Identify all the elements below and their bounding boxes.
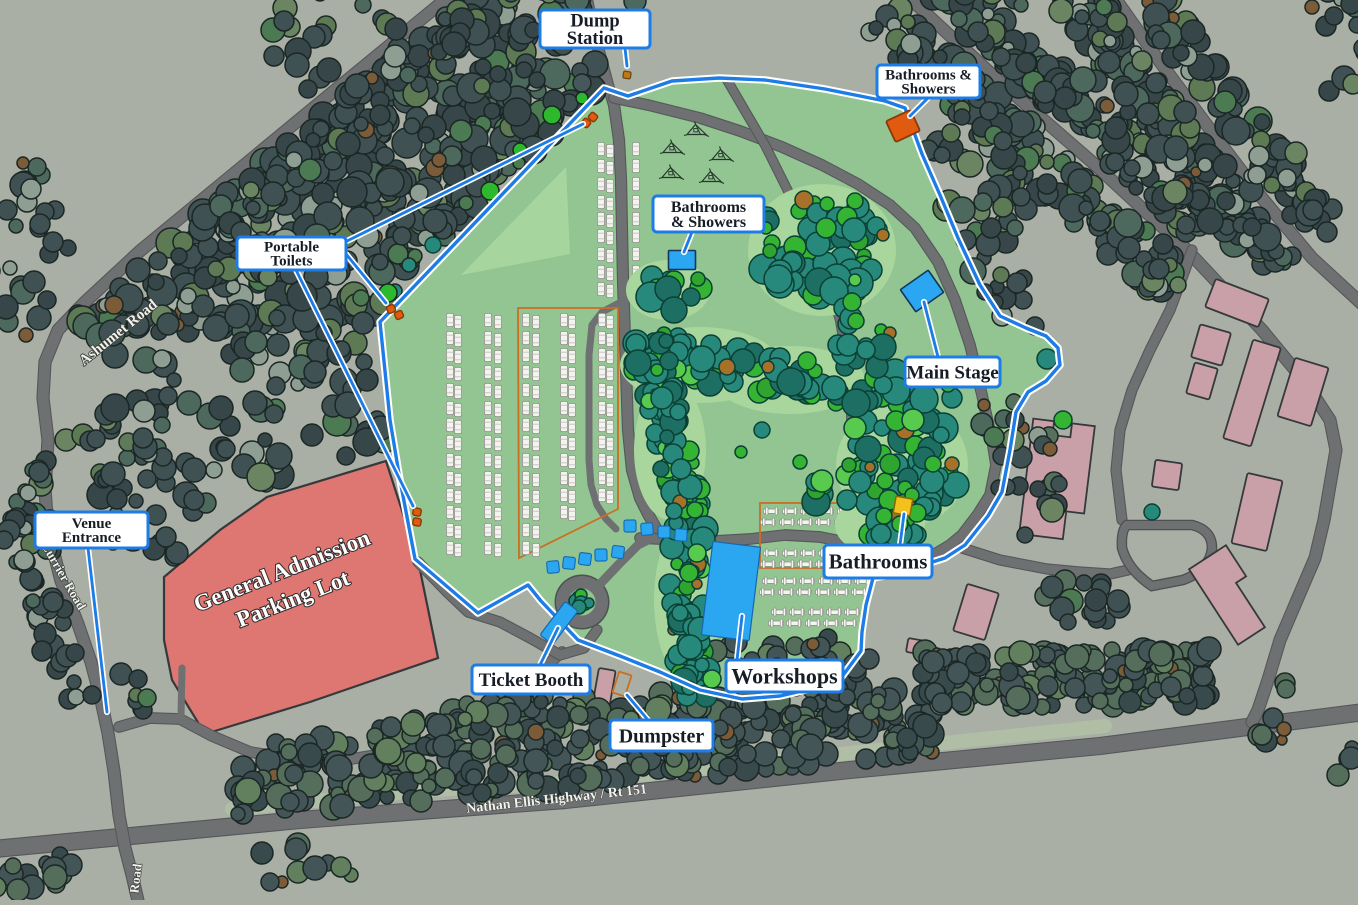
svg-text:Workshops: Workshops xyxy=(731,664,838,689)
svg-text:Ticket Booth: Ticket Booth xyxy=(479,670,584,691)
svg-text:Dumpster: Dumpster xyxy=(619,725,705,747)
svg-text:Toilets: Toilets xyxy=(271,254,313,270)
svg-text:Entrance: Entrance xyxy=(62,530,122,546)
svg-text:Bathrooms: Bathrooms xyxy=(829,550,928,574)
svg-text:Main Stage: Main Stage xyxy=(906,363,998,384)
svg-text:Station: Station xyxy=(567,29,624,49)
svg-text:Showers: Showers xyxy=(901,82,955,98)
svg-text:& Showers: & Showers xyxy=(671,214,746,231)
